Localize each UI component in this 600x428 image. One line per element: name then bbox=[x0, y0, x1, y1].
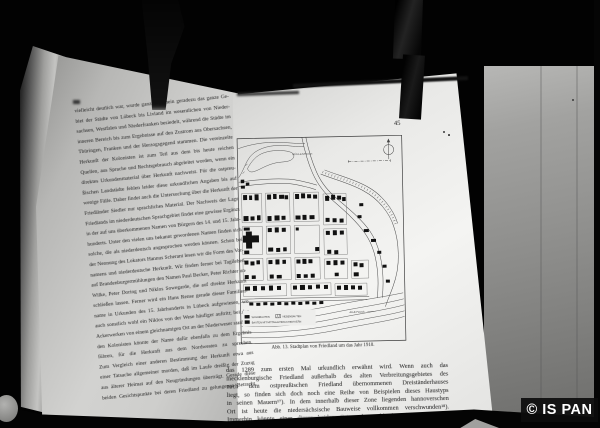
page-number: 45 bbox=[394, 120, 401, 127]
backing-board bbox=[484, 66, 598, 418]
clothespin-clamp-jaw bbox=[399, 54, 425, 119]
copyright-watermark: © IS PAN bbox=[521, 398, 598, 422]
town-blocks bbox=[242, 191, 370, 298]
mill-pond bbox=[238, 142, 306, 178]
town-plan-map: MÜHLENTEICH bbox=[236, 132, 408, 347]
photo-of-open-book: vielleicht deutlich war, wurde ganz allg… bbox=[0, 0, 600, 428]
frame-edge bbox=[594, 0, 600, 428]
dust-speck bbox=[572, 99, 574, 101]
pond-label: MÜHLENTEICH bbox=[292, 153, 312, 156]
legend-filled-square-icon bbox=[245, 315, 250, 319]
town-plan-figure: MÜHLENTEICH bbox=[236, 132, 408, 347]
legend-label: WOHNBAUTEN bbox=[252, 316, 270, 319]
clothespin-clamp bbox=[393, 0, 423, 59]
board-crease bbox=[540, 66, 542, 418]
roads bbox=[238, 135, 400, 309]
legend-filled-square-icon bbox=[245, 320, 250, 324]
dust-speck bbox=[448, 134, 450, 136]
left-page-number-smudge bbox=[73, 100, 80, 104]
board-crease bbox=[576, 66, 578, 418]
left-page-text: vielleicht deutlich war, wurde ganz allg… bbox=[74, 91, 257, 403]
compass-icon bbox=[383, 139, 393, 159]
legend-label: NEBENBAUTEN bbox=[283, 315, 302, 318]
scale-bar bbox=[348, 159, 390, 162]
dust-speck bbox=[443, 131, 445, 133]
church bbox=[243, 231, 259, 248]
river-label: ALLE-FLUSS bbox=[349, 311, 364, 314]
buildings bbox=[241, 177, 391, 307]
